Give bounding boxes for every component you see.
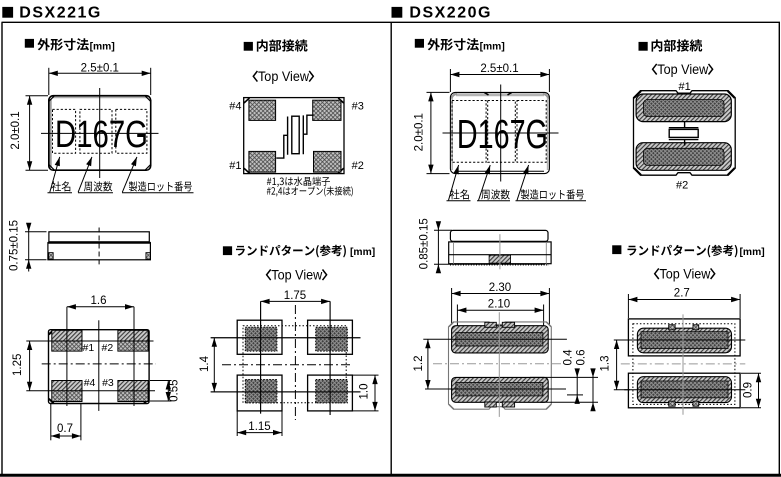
svg-text:2.5±0.1: 2.5±0.1 <box>480 63 518 75</box>
svg-text:2.0±0.1: 2.0±0.1 <box>10 111 22 149</box>
svg-text:0.6: 0.6 <box>576 350 588 366</box>
svg-text:#4: #4 <box>84 377 96 389</box>
svg-text:[mm]: [mm] <box>350 247 375 258</box>
svg-text:D167G: D167G <box>457 111 548 157</box>
svg-text:#2: #2 <box>676 179 688 191</box>
svg-text:Top View: Top View <box>258 69 309 84</box>
svg-text:Top View: Top View <box>659 266 710 281</box>
svg-text:2.7: 2.7 <box>674 288 690 300</box>
svg-text:#3: #3 <box>352 101 364 113</box>
svg-text:#2: #2 <box>352 160 364 172</box>
svg-text:1.75: 1.75 <box>284 290 306 302</box>
svg-text:#3: #3 <box>102 377 114 389</box>
svg-text:2.30: 2.30 <box>489 282 511 294</box>
svg-text:DSX220G: DSX220G <box>409 5 492 22</box>
svg-text:[mm]: [mm] <box>90 41 115 52</box>
svg-text:Top View: Top View <box>271 267 322 282</box>
svg-text:1.3: 1.3 <box>600 356 612 372</box>
svg-text:#1: #1 <box>83 342 95 354</box>
svg-text:#1: #1 <box>679 81 691 93</box>
svg-text:Top View: Top View <box>657 62 708 77</box>
svg-text:D167G: D167G <box>55 114 148 156</box>
svg-text:0.9: 0.9 <box>743 382 755 398</box>
svg-text:1.25: 1.25 <box>12 354 24 376</box>
svg-text:[mm]: [mm] <box>740 247 765 258</box>
svg-text:1.15: 1.15 <box>248 421 270 433</box>
svg-text:#2: #2 <box>102 342 114 354</box>
svg-text:1.4: 1.4 <box>199 355 211 372</box>
svg-text:1.6: 1.6 <box>91 295 107 307</box>
svg-text:[mm]: [mm] <box>480 41 505 52</box>
svg-text:DSX221G: DSX221G <box>19 5 102 22</box>
svg-text:2.10: 2.10 <box>488 299 510 311</box>
svg-text:0.75±0.15: 0.75±0.15 <box>9 220 21 271</box>
svg-text:0.7: 0.7 <box>57 423 73 435</box>
svg-text:#4: #4 <box>229 101 241 113</box>
svg-text:2.0±0.1: 2.0±0.1 <box>414 113 426 151</box>
svg-text:#1: #1 <box>229 160 241 172</box>
svg-text:1.0: 1.0 <box>359 384 371 400</box>
svg-text:0.85±0.15: 0.85±0.15 <box>418 218 430 269</box>
svg-text:1.2: 1.2 <box>413 356 425 372</box>
svg-text:2.5±0.1: 2.5±0.1 <box>81 63 119 75</box>
svg-text:0.4: 0.4 <box>563 349 575 366</box>
svg-text:0.55: 0.55 <box>169 380 181 402</box>
